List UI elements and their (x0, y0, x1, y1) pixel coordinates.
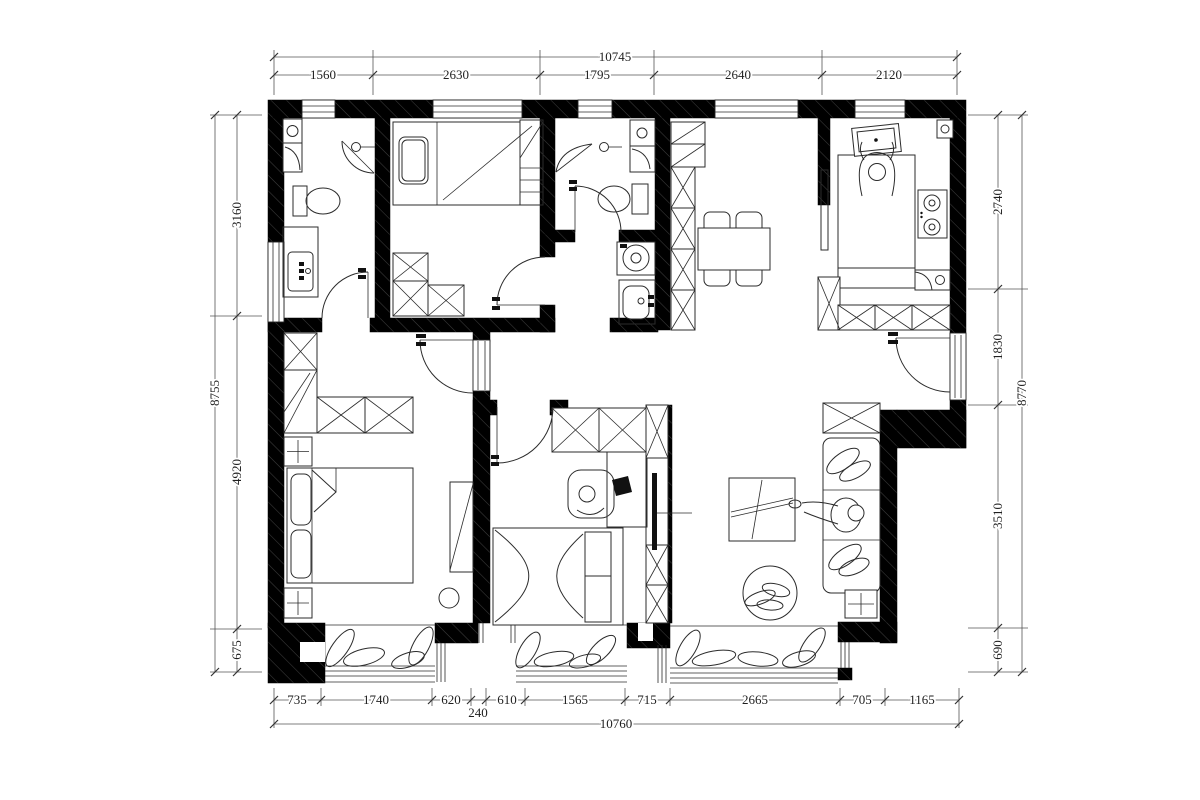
dining-table-icon (698, 228, 770, 270)
floor-plan-drawing: 10745 1560 2630 1795 2640 2120 735 1740 … (0, 0, 1200, 800)
cooktop-icon (918, 190, 947, 238)
wardrobe-icon (393, 253, 464, 316)
fridge-icon (671, 122, 705, 167)
living-room (729, 403, 880, 620)
dimension-ticks (211, 53, 1026, 728)
shower-head-icon (352, 143, 376, 152)
dim-bottom-seg8: 705 (852, 692, 872, 707)
tv-icon (652, 473, 657, 550)
bathroom-2 (556, 120, 655, 214)
wardrobe-icon (284, 333, 413, 433)
double-bed-icon (287, 468, 413, 583)
door-entrance (888, 332, 950, 392)
entry-cabinet-icon (838, 305, 950, 330)
laundry-sink-icon (619, 280, 655, 324)
shower-tray-icon (283, 143, 302, 172)
bed-icon (493, 528, 623, 625)
dim-bottom-seg7: 2665 (742, 692, 768, 707)
shower-tray-icon (630, 146, 655, 172)
bedroom-1 (393, 120, 543, 316)
shower-head-icon (600, 143, 623, 152)
dim-bottom-seg2: 620 (441, 692, 461, 707)
dim-top-total: 10745 (599, 49, 632, 64)
bay-bedroom2 (511, 625, 627, 682)
plant-pot-icon (743, 566, 797, 620)
dim-top-seg2: 1795 (584, 67, 610, 82)
window-top-bath2 (578, 100, 612, 118)
dim-bottom-seg3: 240 (468, 705, 488, 720)
extension-lines (210, 50, 1028, 728)
entry-door-opening (950, 333, 966, 400)
dim-bottom-seg1: 1740 (363, 692, 389, 707)
dim-right-total: 8770 (1014, 380, 1029, 406)
corner-sink-unit-icon (915, 270, 950, 290)
dim-left-seg0: 3160 (229, 202, 244, 228)
floor-plan-canvas: 10745 1560 2630 1795 2640 2120 735 1740 … (0, 0, 1200, 800)
kitchen (818, 120, 953, 330)
window-top-kitchen (855, 100, 905, 118)
dim-left-seg2: 675 (229, 640, 244, 660)
dim-right-seg1: 1830 (990, 334, 1005, 360)
dim-right-seg3: 690 (990, 640, 1005, 660)
master-bedroom (284, 333, 473, 618)
bedroom-2 (493, 405, 692, 625)
dim-bottom-total: 10760 (600, 716, 633, 731)
person-at-desk-icon (568, 470, 632, 518)
bay-living (658, 624, 849, 683)
dim-bottom-seg5: 1565 (562, 692, 588, 707)
dim-top-seg0: 1560 (310, 67, 336, 82)
master-door-opening (473, 340, 490, 391)
dim-top-seg1: 2630 (443, 67, 469, 82)
dim-top-seg4: 2120 (876, 67, 902, 82)
window-left-bath1 (268, 242, 284, 322)
dim-right-seg0: 2740 (990, 189, 1005, 215)
toilet-icon (598, 184, 648, 214)
dim-top-seg3: 2640 (725, 67, 751, 82)
dimension-annotations: 10745 1560 2630 1795 2640 2120 735 1740 … (207, 49, 1029, 731)
dim-bottom-seg0: 735 (287, 692, 307, 707)
door-bedroom2 (491, 407, 553, 466)
lower-counter (838, 268, 915, 288)
door-master-bedroom (416, 334, 473, 393)
single-bed-icon (393, 122, 532, 205)
tall-cabinet-icon (671, 167, 695, 330)
dim-left-total: 8755 (207, 380, 222, 406)
window-top-bedroom1 (433, 100, 522, 118)
dim-left-seg1: 4920 (229, 459, 244, 485)
dining-area (698, 212, 770, 286)
desk-icon (450, 482, 473, 572)
coffee-table-icon (729, 478, 795, 541)
window-top-bath1 (302, 100, 335, 118)
washer-icon (283, 119, 302, 143)
dim-bottom-seg6: 715 (637, 692, 657, 707)
dimension-labels: 10745 1560 2630 1795 2640 2120 735 1740 … (207, 49, 1029, 731)
door-bathroom1 (322, 268, 368, 318)
corner-sink-icon (630, 120, 655, 146)
shower-door-icon (556, 144, 592, 172)
corner-unit-icon (937, 120, 953, 138)
laundry (617, 242, 655, 324)
laptop-icon (612, 476, 632, 496)
storage-column (671, 122, 705, 330)
vanity-sink-icon (283, 227, 318, 297)
stool-icon (439, 588, 459, 608)
door-bedroom1 (492, 257, 545, 310)
wardrobe-icon (552, 408, 646, 452)
shower-door-icon (342, 141, 374, 173)
washing-machine-icon (617, 242, 655, 275)
bay-windows (321, 623, 849, 683)
bay-master (321, 623, 515, 682)
dim-bottom-seg4: 610 (497, 692, 517, 707)
window-top-dining (715, 100, 798, 118)
dim-right-seg2: 3510 (990, 503, 1005, 529)
dim-bottom-seg9: 1165 (909, 692, 935, 707)
toilet-icon (293, 186, 340, 216)
